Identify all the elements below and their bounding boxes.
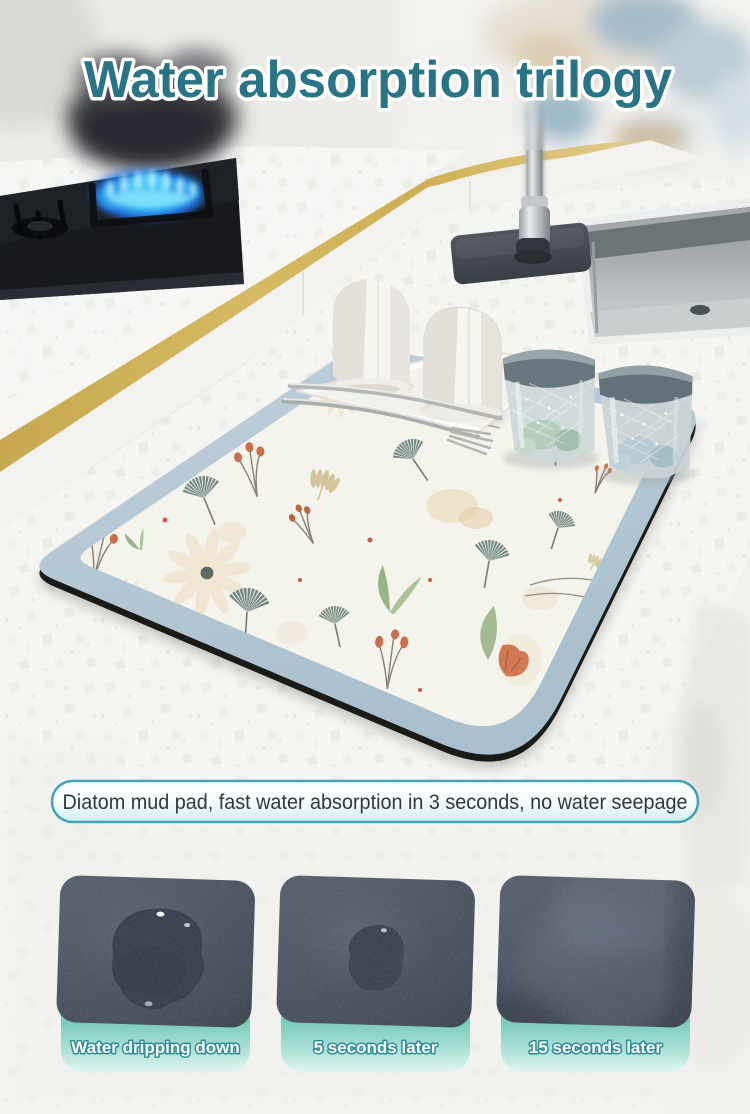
- svg-text:5 seconds later: 5 seconds later: [314, 1038, 438, 1057]
- svg-text:Water dripping down: Water dripping down: [71, 1038, 239, 1057]
- svg-text:Diatom mud pad, fast water abs: Diatom mud pad, fast water absorption in…: [63, 790, 688, 814]
- svg-text:Water absorption trilogy: Water absorption trilogy: [84, 51, 672, 109]
- svg-text:15 seconds later: 15 seconds later: [529, 1038, 663, 1057]
